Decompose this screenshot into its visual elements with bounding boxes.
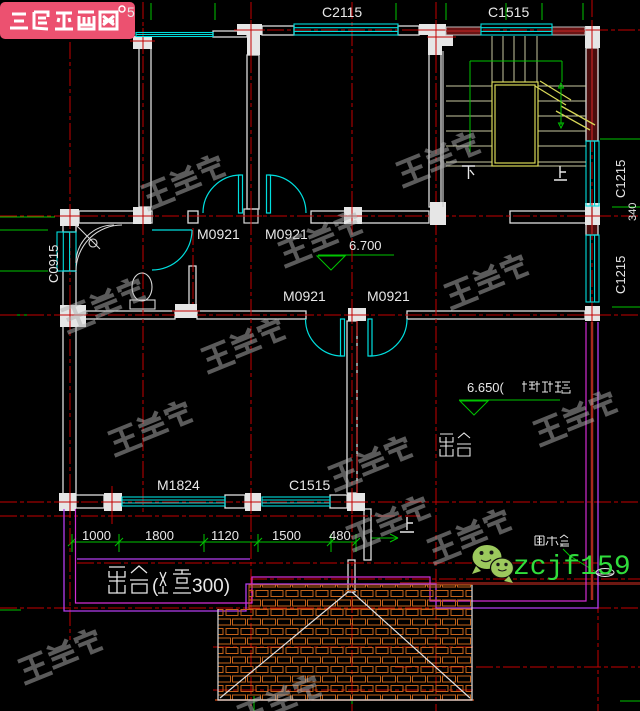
svg-text:M1824: M1824 xyxy=(157,477,200,493)
svg-text:480: 480 xyxy=(329,528,351,543)
svg-text:C2115: C2115 xyxy=(322,4,362,20)
svg-text:C1215: C1215 xyxy=(613,256,628,294)
svg-text:(: ( xyxy=(152,576,159,597)
svg-text:1000: 1000 xyxy=(82,528,111,543)
svg-text:C1515: C1515 xyxy=(289,477,330,493)
svg-text:M0921: M0921 xyxy=(197,226,240,242)
svg-text:M0921: M0921 xyxy=(367,288,410,304)
svg-text:1500: 1500 xyxy=(272,528,301,543)
svg-text:340: 340 xyxy=(627,203,639,221)
svg-text:C1515: C1515 xyxy=(488,4,529,20)
svg-text:300): 300) xyxy=(192,576,230,597)
svg-text:5: 5 xyxy=(127,4,135,20)
svg-text:1800: 1800 xyxy=(145,528,174,543)
svg-text:6.650(: 6.650( xyxy=(467,380,505,395)
svg-text:C0915: C0915 xyxy=(46,245,61,283)
svg-text:zcjf159: zcjf159 xyxy=(513,552,631,583)
svg-text:C1215: C1215 xyxy=(613,160,628,198)
svg-text:6.700: 6.700 xyxy=(349,238,382,253)
svg-text:M0921: M0921 xyxy=(283,288,326,304)
svg-text:1120: 1120 xyxy=(211,528,239,543)
